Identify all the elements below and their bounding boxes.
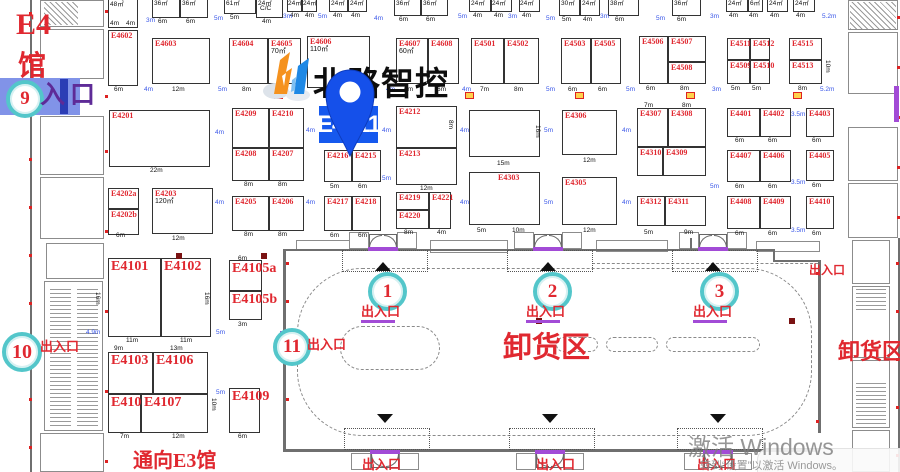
booth-e4103: E4103 [108,352,153,394]
booth-id-label: E4103 [111,354,148,369]
dimension-label: 6m [735,231,744,238]
entrance-text-label: 入口 [40,82,100,110]
booth-e4210: E4210 [269,108,304,148]
dimension-label: 6m [646,86,655,93]
booth-e4217: E4217 [324,196,352,231]
dimension-label: 6m [568,87,577,94]
booth-id-label: E4608 [431,40,452,48]
direction-arrow-up [540,262,556,271]
dimension-label: 8m [242,87,251,94]
dimension-label: 4m [382,128,391,135]
booth-id-label: E4407 [730,152,751,160]
dimension-label: 4m [729,13,738,20]
dimension-label: 3m [710,14,719,21]
door-approach-zone [509,428,595,450]
wall-marker-dot [816,420,819,423]
booth-id-label: E4408 [730,198,751,206]
booth-id-label: E4212 [399,108,420,116]
dimension-label: 6m [426,17,435,24]
dimension-label: 6m [358,233,367,240]
booth-area-label: C/C [260,6,271,13]
dimension-label: 4m [351,13,360,20]
booth-id-label: E4513 [792,62,813,70]
booth-e4201: E4201 [109,110,210,167]
booth-e4510: E4510 [750,60,770,84]
exit-label-bottom: 出入口 [362,454,401,472]
wall-marker-dot [105,150,108,153]
booth-e4308: E4308 [668,108,706,147]
dimension-label: 7m [120,434,129,441]
booth-area-label: 6㎡ [750,1,760,8]
wall-marker-dot [105,390,108,393]
booth-area-label: 24㎡ [769,1,783,8]
wall-marker-dot [29,254,32,257]
booth-id-label: E4220 [399,212,420,220]
booth-id-label: E4202a [111,190,136,198]
booth-e4311: E4311 [665,196,706,226]
booth-area-label: 24㎡ [728,1,742,8]
dimension-label: 4m [374,16,383,23]
dimension-label: 4m [622,200,631,207]
dimension-label: 8m [798,86,807,93]
dimension-label: 4m [770,13,779,20]
dimension-label: 3m [508,14,517,21]
road-capsule [666,337,760,352]
building-room [848,127,898,181]
booth-id-label: E4507 [671,38,692,46]
dimension-label: 4m [215,130,224,137]
unloading-area-right-label: 卸货区入 [838,334,900,366]
dimension-label: 8m [244,182,253,189]
entrance-text-label: 出入口 [361,305,400,323]
booth-e4507: E4507 [668,36,706,62]
booth-e4408: E4408 [727,196,760,229]
dimension-label: 6m [812,138,821,145]
booth-e4107: E4107 [141,394,208,433]
dimension-label: 6m [812,183,821,190]
direction-arrow-up [705,262,721,271]
dimension-label: 8m [680,86,689,93]
dimension-label: 5m [626,87,635,94]
dimension-label: 4m [262,19,271,26]
wall-marker-dot [29,206,32,209]
wall-marker-dot [286,262,289,265]
booth-area-label: 36㎡ [154,1,168,8]
dimension-label: 8m [404,230,413,237]
booth-id-label: E4512 [753,40,774,48]
dimension-label: 16m [534,125,541,138]
booth-e4109: E4109 [229,388,260,433]
entrance-number: 11 [283,336,301,358]
wall-marker-dot [105,95,108,98]
booth-area-label: 24㎡ [288,1,302,8]
dimension-label: 4m [494,13,503,20]
door-accent-bar [533,247,563,251]
dimension-label: 7m [480,87,489,94]
booth-e4219: E4219 [396,192,429,210]
wall-marker-dot [105,230,108,233]
exhibition-floor-plan: E4 馆 北路智控 E4211 卸货区 卸货区入 通向E3馆 出入口 激活 Wi… [0,0,900,472]
booth-e4206: E4206 [269,196,304,231]
dimension-label: 8m [447,120,454,129]
dimension-label: 6m [330,233,339,240]
dimension-label: 5m [330,184,339,191]
booth-id-label: E4604 [232,40,253,48]
entrance-marker-11: 11 [273,328,311,366]
booth-area-label: 61㎡ [226,1,240,8]
dimension-label: 5m [656,16,665,23]
booth-id-label: E4210 [272,110,293,118]
dimension-label: 7m [644,103,653,110]
building-room [430,240,508,253]
booth-e4509: E4509 [727,60,750,84]
booth-e4502: E4502 [504,38,539,84]
wall-marker-dot [29,446,32,449]
entrance-number: 3 [715,281,725,303]
building-room [40,177,104,239]
booth-id-label: E4218 [355,198,376,206]
booth-area-label: 36㎡ [423,1,437,8]
booth-area-label: 38㎡ [610,1,624,8]
booth-id-label: E4506 [642,38,663,46]
company-logo-icon [262,50,314,107]
booth-area-label: 24㎡ [471,1,485,8]
dimension-label: 4m [110,21,119,28]
stairs-hatch [850,2,896,29]
booth-id-label: E4410 [809,198,830,206]
booth-area-label: 24㎡ [795,1,809,8]
dimension-label: 6m [768,138,777,145]
dimension-label: 22m [150,168,163,175]
booth-e4409: E4409 [760,196,791,229]
entrance-text-label: 出入口 [526,305,565,323]
dimension-label: 9m [114,346,123,353]
direction-arrow-down [710,414,726,423]
dimension-label: 5m [318,14,327,21]
booth-e4515: E4515 [789,38,822,60]
dimension-label: 4m [462,87,471,94]
dimension-label: 5m [458,14,467,21]
booth-id-label: E4105b [232,293,277,308]
booth-id-label: E4406 [763,152,784,160]
booth-e4208: E4208 [232,148,269,181]
door-accent-bar [368,247,398,251]
booth-id-label: E4405 [809,152,830,160]
booth-area-label: 60㎡ [399,48,414,55]
dimension-label: 8m [278,182,287,189]
dimension-label: 12m [420,186,433,193]
dimension-label: 16m [203,292,210,305]
booth-id-label: E4202b [111,211,137,219]
booth-id-label: E4209 [235,110,256,118]
booth-e4220: E4220 [396,210,429,229]
building-room [848,32,898,94]
dimension-label: 4m [306,200,315,207]
booth-area-label: 24㎡ [520,1,534,8]
direction-arrow-down [377,414,393,423]
dimension-label: 3.5m [791,228,805,235]
dimension-label: 4m [305,13,314,20]
entrance-number: 1 [383,281,393,303]
dimension-label: 5m [544,200,553,207]
entrance-underline [526,320,560,323]
door-accent-bar [894,86,899,122]
booth-e4105a: E4105a [229,260,262,291]
dimension-label: 5m [562,17,571,24]
booth-area-label: 24㎡ [331,1,345,8]
equipment-marker [261,253,267,259]
wall-marker-dot [29,398,32,401]
booth-area-label: 36㎡ [182,1,196,8]
dimension-label: 12m [172,236,185,243]
dimension-label: 5m [216,390,225,397]
dimension-label: 6m [186,19,195,26]
booth-id-label: E4409 [763,198,784,206]
booth-area-label: 24㎡ [303,1,317,8]
wall-marker-dot [105,310,108,313]
dimension-label: 4m [522,13,531,20]
unloading-area-label: 卸货区 [503,324,590,366]
booth-e4307: E4307 [637,108,668,147]
booth-e4306: E4306 [562,110,617,155]
door-side-room [516,453,536,470]
booth-e4310: E4310 [637,147,663,176]
booth-id-label: E4503 [564,40,585,48]
booth-id-label: E4508 [671,64,692,72]
dimension-label: 5m [731,86,740,93]
dimension-label: 4m [306,128,315,135]
booth-e4501: E4501 [471,38,504,84]
booth-id-label: E4402 [763,110,784,118]
dimension-label: 6m [735,138,744,145]
booth-id-label: E4219 [399,194,420,202]
wall-marker-dot [896,262,899,265]
dimension-label: 5m [644,230,653,237]
booth-e4503: E4503 [561,38,591,84]
stairs-hatch [856,288,886,310]
booth-e4407: E4407 [727,150,760,182]
booth-area-label: 120㎡ [155,198,174,205]
booth-id-label: E4305 [565,179,586,187]
entrance-number: 2 [548,281,558,303]
booth-id-label: E4602 [111,32,132,40]
building-room [848,183,898,238]
dimension-label: 6m [812,231,821,238]
dimension-label: 6m [768,231,777,238]
dimension-label: 5m [216,330,225,337]
dimension-label: 5m [544,128,553,135]
road-capsule [606,337,658,352]
booth-e4402: E4402 [760,108,791,137]
booth-e4410: E4410 [806,196,834,229]
door-side-room [514,232,534,249]
booth-e4406: E4406 [760,150,791,182]
booth-id-label: E4221 [432,194,453,202]
dimension-label: 5m [218,87,227,94]
entrance-number: 10 [12,341,32,364]
dimension-label: 12m [583,158,596,165]
road-island [340,326,440,370]
dimension-label: 5m [710,184,719,191]
dimension-label: 5m [546,16,555,23]
hall-title-line1: E4 [16,8,51,42]
dimension-label: 6m [358,184,367,191]
wall-marker-dot [105,10,108,13]
booth-id-label: E4207 [272,150,293,158]
dimension-label: 4m [622,128,631,135]
booth-e4512: E4512 [750,38,770,60]
dimension-label: 6m [615,17,624,24]
booth-area-label: 36㎡ [396,1,410,8]
dimension-label: 6m [158,19,167,26]
booth-id-label: E4403 [809,110,830,118]
dimension-label: 11m [126,338,138,345]
booth-e4101: E4101 [108,258,161,337]
dimension-label: 6m [116,233,125,240]
booth-id-label: E4502 [507,40,528,48]
booth-area-label: 30㎡ [561,1,575,8]
booth-e4221: E4221 [429,192,451,229]
dimension-label: 4m [796,13,805,20]
dimension-label: 13m [170,346,183,353]
booth-e4401: E4401 [727,108,760,137]
fire-equipment-icon [793,92,802,99]
dimension-label: 4m [126,21,135,28]
booth-e4312: E4312 [637,196,665,226]
booth-e4218: E4218 [352,196,381,231]
wall-marker-dot [105,460,108,463]
dimension-label: 5.2m [820,87,834,94]
booth-e4506: E4506 [639,36,668,84]
fire-equipment-icon [686,92,695,99]
dimension-label: 15m [497,161,510,168]
exit-label-bottom: 出入口 [536,454,575,472]
dimension-label: 3m [283,14,292,21]
dimension-label: 12m [172,434,185,441]
dimension-label: 10m [512,228,525,235]
booth-e4203: E4203120㎡ [152,188,213,234]
wall-marker-dot [896,310,899,313]
dimension-label: 4m [437,230,446,237]
dimension-label: 4m [460,200,469,207]
wall-marker-dot [29,158,32,161]
building-room [46,243,104,279]
booth-id-label: E4501 [474,40,495,48]
stairs-hatch [856,380,886,424]
equipment-marker [789,318,795,324]
booth-e4511: E4511 [727,38,750,60]
booth-e4403: E4403 [806,108,834,137]
booth-e4303: E4303 [469,172,540,225]
stairs-hatch [77,286,98,426]
dimension-label: 5m [477,228,486,235]
booth-e4305: E4305 [562,177,617,225]
dimension-label: 3.5m [791,112,805,119]
dimension-label: 4m [333,13,342,20]
booth-id-label: E4306 [565,112,586,120]
booth-e4207: E4207 [269,148,304,181]
booth-id-label: E4107 [144,396,181,411]
dimension-label: 10m [824,60,831,73]
booth-e4603: E4603 [152,38,210,84]
dimension-label: 4m [749,13,758,20]
booth-e4209: E4209 [232,108,269,148]
dimension-label: 3m [238,322,247,329]
booth-e4106: E4106 [153,352,208,394]
entrance-number: 9 [20,88,30,110]
booth-id-label: E4603 [155,40,176,48]
booth-id-label: E4310 [640,149,661,157]
entrance-marker-9: 9 [6,80,44,118]
booth-id-label: E4311 [668,198,689,206]
dimension-label: 12m [172,87,185,94]
booth-id-label: E4201 [112,112,133,120]
to-e3-hall-label: 通向E3馆 [133,444,216,472]
dimension-label: 12m [583,228,596,235]
dimension-label: 3m [600,14,609,21]
wall-marker-dot [29,302,32,305]
dimension-label: 6m [677,17,686,24]
door-accent-bar [698,247,728,251]
dimension-label: 6m [768,184,777,191]
booth-id-label: E4205 [235,198,256,206]
booth-area-label: 24㎡ [350,1,364,8]
booth-id-label: E4401 [730,110,751,118]
booth-id-label: E4511 [730,40,751,48]
booth-id-label: E4213 [399,150,420,158]
dimension-label: 8m [278,232,287,239]
dimension-label: 6m [598,87,607,94]
dimension-label: 8m [682,103,691,110]
building-room [852,240,890,284]
dimension-label: 5m [214,16,223,23]
booth-id-label: E4308 [671,110,692,118]
wall [818,260,821,433]
booth-id-label: E4105a [232,262,276,277]
wall-marker-dot [896,406,899,409]
dimension-label: 6m [238,256,247,263]
booth-e4105b: E4105b [229,291,262,320]
booth-id-label: E4303 [498,174,519,182]
dimension-label: 4m [215,200,224,207]
dimension-label: 5.2m [822,14,836,21]
booth-id-label: E4102 [164,260,201,275]
dimension-label: 4m [460,128,469,135]
dimension-label: 4m [144,87,153,94]
booth-id-label: E4505 [594,40,615,48]
dimension-label: 6m [238,434,247,441]
booth-area-label: 24㎡ [582,1,596,8]
exit-label-top-right: 出入口 [809,261,845,278]
booth-id-label: E4515 [792,40,813,48]
dimension-label: 5m [382,176,391,183]
booth-e4309: E4309 [663,147,706,176]
door-side-room [399,453,419,470]
booth-e4213: E4213 [396,148,457,185]
booth-id-label: E4510 [753,62,774,70]
entrance-text-label: 出入口 [307,338,346,352]
dimension-label: 3.5m [791,180,805,187]
booth-e4602: E4602 [108,30,138,86]
dimension-label: 4.9m [86,330,100,337]
dimension-label: 6m [399,17,408,24]
booth-e4202a: E4202a [108,188,139,209]
booth-id-label: E4206 [272,198,293,206]
stairs-hatch [50,286,71,426]
booth-e4513: E4513 [789,60,822,84]
door-side-room [562,232,582,249]
entrance-text-label: 出入口 [40,340,79,354]
